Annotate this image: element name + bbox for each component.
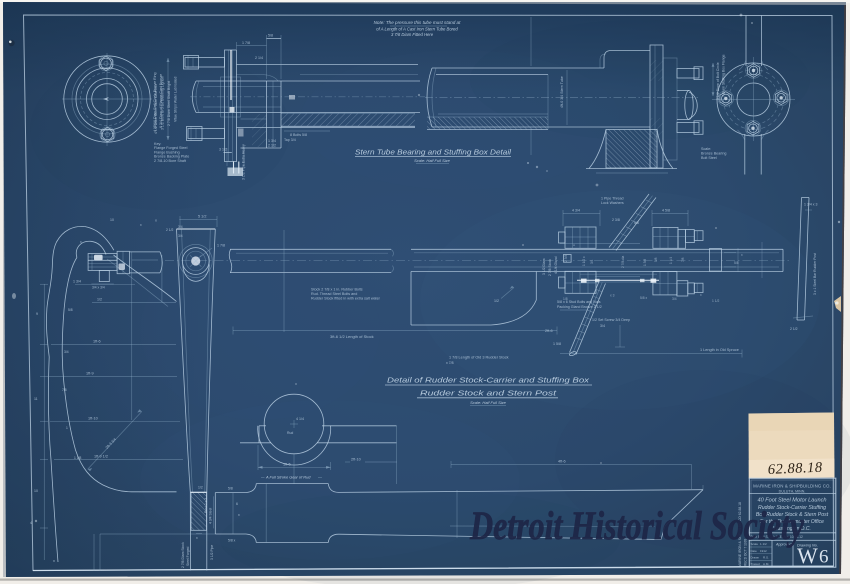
- svg-text:3 1/2 Bore Bronze Bushing Lign: 3 1/2 Bore Bronze Bushing Lignum: [161, 76, 165, 130]
- svg-text:6: 6: [236, 502, 238, 506]
- svg-text:A.M.: A.M.: [763, 562, 769, 566]
- svg-text:1 1/2: 1 1/2: [712, 299, 719, 303]
- svg-text:1ft-6: 1ft-6: [93, 340, 101, 344]
- svg-text:1ft-10: 1ft-10: [88, 416, 98, 420]
- svg-text:4 3/4: 4 3/4: [572, 209, 580, 213]
- svg-text:5/8: 5/8: [68, 308, 73, 312]
- svg-text:1 Length in Old Spruce: 1 Length in Old Spruce: [700, 348, 739, 352]
- svg-text:Bronze Bearing: Bronze Bearing: [701, 152, 726, 156]
- svg-text:7/8: 7/8: [681, 257, 685, 262]
- svg-text:5/8: 5/8: [634, 221, 639, 225]
- svg-text:DULUTH, MINN.: DULUTH, MINN.: [779, 489, 806, 493]
- svg-text:3/4: 3/4: [64, 350, 69, 354]
- svg-text:1/2: 1/2: [494, 299, 499, 303]
- svg-text:4 3/4 Steel: 4 3/4 Steel: [209, 508, 213, 524]
- svg-text:4 1/2 Diam Stern Tube Cast Iro: 4 1/2 Diam Stern Tube Cast Iron: [154, 84, 158, 134]
- svg-text:Scale: Half Full Size: Scale: Half Full Size: [414, 158, 451, 163]
- svg-text:5/8 x: 5/8 x: [640, 296, 647, 300]
- svg-text:3 x 1 Steel Bar Rudder Post: 3 x 1 Steel Bar Rudder Post: [813, 253, 817, 295]
- svg-text:1 7/8 Length of Old 3 Rudder S: 1 7/8 Length of Old 3 Rudder Stock: [449, 356, 509, 360]
- svg-text:Lock Washers: Lock Washers: [601, 201, 624, 205]
- svg-text:x: x: [53, 559, 55, 563]
- svg-text:7 Diam Stuffing Box Flange: 7 Diam Stuffing Box Flange: [722, 54, 726, 97]
- svg-text:5 1/2: 5 1/2: [198, 215, 206, 219]
- svg-text:Detail of Rudder Stock-Carrier: Detail of Rudder Stock-Carrier and Stuff…: [387, 376, 590, 385]
- svg-text:2ft-6: 2ft-6: [545, 329, 553, 333]
- svg-text:2 7/8 Diam Stock: 2 7/8 Diam Stock: [181, 542, 185, 568]
- svg-text:2 1/2: 2 1/2: [166, 228, 173, 232]
- svg-text:1 3/8: 1 3/8: [643, 259, 647, 266]
- svg-text:2 1/2: 2 1/2: [268, 144, 276, 148]
- svg-text:4 1/4 Gland: 4 1/4 Gland: [554, 256, 558, 274]
- svg-text:3/4: 3/4: [178, 234, 183, 238]
- svg-text:3/4: 3/4: [600, 324, 605, 328]
- svg-text:2 1/4: 2 1/4: [255, 56, 263, 60]
- svg-text:1/2: 1/2: [97, 298, 102, 302]
- svg-text:3/4: 3/4: [590, 259, 594, 264]
- svg-text:3 1/2: 3 1/2: [219, 148, 227, 152]
- svg-text:1 1/8: 1 1/8: [74, 456, 81, 460]
- svg-text:3/4 x 3/4: 3/4 x 3/4: [92, 286, 105, 290]
- svg-text:Packing Gland Bronze 2 1/2: Packing Gland Bronze 2 1/2: [557, 305, 602, 309]
- svg-text:Traced: Traced: [751, 562, 761, 566]
- svg-text:2 3/8: 2 3/8: [564, 255, 568, 262]
- svg-text:x 3: x 3: [610, 294, 615, 298]
- svg-text:Note: The pressure this tube m: Note: The pressure this tube must stand …: [374, 20, 462, 25]
- svg-text:1 1/4: 1 1/4: [669, 257, 673, 264]
- svg-text:62.88.18: 62.88.18: [767, 460, 823, 478]
- svg-text:4ft-0 3/4 Stern Tube: 4ft-0 3/4 Stern Tube: [560, 76, 564, 108]
- svg-text:5/8 x: 5/8 x: [228, 539, 236, 543]
- svg-text:3/4: 3/4: [178, 225, 183, 229]
- svg-text:5 1/2 Diam of Bolt Circle: 5 1/2 Diam of Bolt Circle: [716, 62, 720, 100]
- svg-text:3ft-6 1/2 Length of Stock: 3ft-6 1/2 Length of Stock: [330, 334, 374, 339]
- svg-text:x: x: [155, 219, 157, 223]
- svg-text:2 7/8 dia: 2 7/8 dia: [621, 256, 625, 268]
- svg-text:1 Pipe Thread: 1 Pipe Thread: [601, 197, 624, 201]
- svg-text:4 5/8: 4 5/8: [662, 209, 670, 213]
- svg-text:1 7/8: 1 7/8: [217, 244, 225, 248]
- svg-text:1/2: 1/2: [198, 486, 203, 490]
- svg-text:5/8: 5/8: [268, 34, 273, 38]
- svg-text:3 7/8 Diam Fitted Here: 3 7/8 Diam Fitted Here: [391, 32, 434, 37]
- svg-text:5/8: 5/8: [654, 257, 658, 262]
- svg-text:Bolt Steel: Bolt Steel: [701, 156, 717, 160]
- svg-text:10: 10: [34, 489, 38, 493]
- svg-text:4 1/4: 4 1/4: [296, 417, 304, 421]
- svg-text:2 7/8 Diam Steel Shaft Bright: 2 7/8 Diam Steel Shaft Bright: [167, 81, 171, 126]
- svg-text:11: 11: [34, 397, 38, 401]
- svg-text:MARINE IRON & SHIPBUILDING CO.: MARINE IRON & SHIPBUILDING CO.: [753, 484, 831, 489]
- svg-text:Rudder Stock and Stern Post: Rudder Stock and Stern Post: [420, 389, 557, 398]
- svg-text:x: x: [238, 513, 240, 517]
- svg-text:R.S.: R.S.: [763, 556, 769, 560]
- svg-text:1 3/4: 1 3/4: [268, 139, 276, 143]
- svg-text:Drawn: Drawn: [751, 556, 760, 560]
- svg-text:Stock 2 7/8 x 1 in. Rubber Bol: Stock 2 7/8 x 1 in. Rubber Bolts: [311, 288, 363, 292]
- svg-text:1ft-9: 1ft-9: [86, 372, 94, 376]
- svg-text:3 1/2 Pipe: 3 1/2 Pipe: [210, 545, 214, 560]
- svg-text:5/8: 5/8: [228, 487, 233, 491]
- svg-text:Detroit Historical Society: Detroit Historical Society: [469, 503, 804, 548]
- svg-text:Scale:: Scale:: [701, 147, 711, 151]
- svg-text:7/8: 7/8: [62, 388, 67, 392]
- svg-text:Scale: Half Full Size: Scale: Half Full Size: [470, 400, 507, 405]
- svg-text:1 1/2 x: 1 1/2 x: [582, 256, 586, 266]
- svg-text:1 3/4: 1 3/4: [73, 280, 81, 284]
- svg-text:1/2 Set Screw 3/4 Deep: 1/2 Set Screw 3/4 Deep: [592, 318, 630, 322]
- svg-text:2 1/2: 2 1/2: [790, 327, 798, 331]
- svg-text:1: 1: [66, 426, 68, 430]
- svg-text:Stern Tube Bearing and Stuffin: Stern Tube Bearing and Stuffing Box Deta…: [355, 148, 511, 157]
- svg-text:Rudder Stock fitted in with ex: Rudder Stock fitted in with extra salt w…: [311, 297, 381, 301]
- svg-text:2 3/8: 2 3/8: [612, 218, 620, 222]
- svg-text:Date: Date: [751, 549, 758, 553]
- svg-text:5/8 x 6 Stud Bolts and Nuts: 5/8 x 6 Stud Bolts and Nuts: [557, 300, 601, 304]
- svg-text:2 7/8-10 Bore Shaft: 2 7/8-10 Bore Shaft: [154, 159, 186, 163]
- svg-text:Steel Forged: Steel Forged: [186, 546, 190, 566]
- svg-text:1 3/4 x 3: 1 3/4 x 3: [804, 203, 817, 207]
- svg-text:3 1/2 Pipe Extra Heavy: 3 1/2 Pipe Extra Heavy: [242, 144, 246, 180]
- svg-text:3/4: 3/4: [672, 297, 677, 301]
- svg-text:9: 9: [36, 312, 38, 316]
- svg-text:Vitae Strips Water Lubricated: Vitae Strips Water Lubricated: [174, 77, 178, 122]
- svg-text:x 7/8: x 7/8: [446, 361, 454, 365]
- svg-text:4: 4: [30, 521, 32, 525]
- svg-text:1912: 1912: [760, 549, 767, 553]
- svg-text:A Full Stroke Gear of Rud: A Full Stroke Gear of Rud: [265, 475, 311, 480]
- svg-text:3 1/2 Diam: 3 1/2 Diam: [542, 258, 546, 275]
- svg-text:x: x: [196, 536, 198, 540]
- svg-text:6: 6: [819, 547, 829, 568]
- svg-text:8 Bolts 5/8: 8 Bolts 5/8: [290, 133, 307, 137]
- svg-text:1 7/8: 1 7/8: [242, 41, 250, 45]
- svg-text:2 7/8 Stock: 2 7/8 Stock: [548, 259, 552, 276]
- svg-text:1ft-5: 1ft-5: [283, 462, 291, 466]
- svg-text:Rud: Rud: [287, 431, 293, 435]
- svg-text:2ft-10: 2ft-10: [351, 458, 361, 462]
- svg-text:1 5/8: 1 5/8: [553, 342, 561, 346]
- svg-text:10: 10: [110, 218, 114, 222]
- svg-text:Rud. Thread Steel Bolts and: Rud. Thread Steel Bolts and: [311, 292, 357, 296]
- svg-text:4ft-6: 4ft-6: [558, 460, 566, 464]
- svg-text:Tap 3/4: Tap 3/4: [284, 138, 296, 142]
- svg-text:of A Length of A Cast Iron Ste: of A Length of A Cast Iron Stern Tube Bo…: [376, 27, 458, 32]
